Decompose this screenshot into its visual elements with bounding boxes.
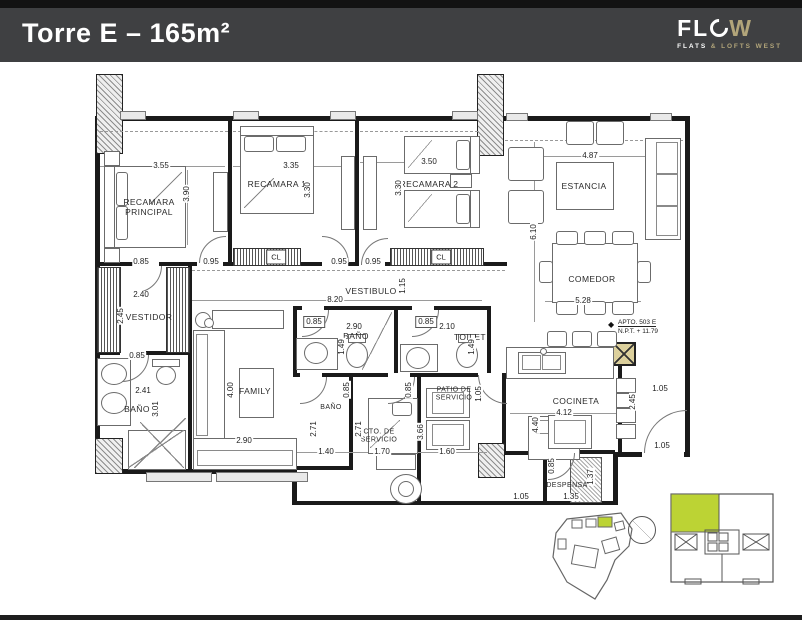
dim-label: 5.28 bbox=[574, 297, 592, 305]
nightstand bbox=[104, 248, 120, 263]
desk bbox=[212, 310, 284, 329]
dim-label: 1.60 bbox=[438, 448, 456, 456]
dim-label: 2.45 bbox=[629, 393, 637, 411]
wall bbox=[487, 306, 491, 377]
room-label-banio-servicio: BAÑO bbox=[320, 404, 341, 412]
room-label-patio-servicio: PATIO DE SERVICIO bbox=[436, 387, 473, 404]
dim-label: 0.85 bbox=[128, 352, 146, 360]
tower-core bbox=[705, 530, 739, 554]
flow-logo-tagline: FLATS & LOFTS WEST bbox=[677, 43, 782, 50]
tv-console bbox=[213, 172, 228, 232]
dim-label: 1.70 bbox=[373, 448, 391, 456]
closet-label: CL bbox=[266, 250, 286, 265]
dim-label: 0.95 bbox=[364, 258, 382, 266]
site-building bbox=[586, 519, 596, 527]
wall bbox=[293, 466, 351, 470]
dim-label: 1.05 bbox=[512, 493, 530, 501]
top-strip bbox=[0, 0, 802, 8]
room-label-banio-principal: BAÑO bbox=[124, 404, 150, 414]
dim-label: 1.05 bbox=[475, 385, 483, 403]
dim-label: 3.66 bbox=[417, 423, 425, 441]
tower-elevator bbox=[719, 543, 728, 551]
entry-door-swing bbox=[140, 422, 184, 468]
dim-label: 8.20 bbox=[326, 296, 344, 304]
room-label-recamara-principal: RECAMARA PRINCIPAL bbox=[123, 197, 174, 217]
bed-headboard bbox=[470, 136, 480, 174]
dim-label: 0.85 bbox=[303, 316, 325, 328]
sink-basin bbox=[522, 355, 541, 370]
tower-unit-highlight bbox=[671, 494, 719, 532]
tower-key-plan bbox=[663, 486, 783, 598]
column bbox=[477, 74, 504, 156]
room-label-family: FAMILY bbox=[239, 386, 271, 396]
dim-label: 3.35 bbox=[282, 162, 300, 170]
dim-label: 3.30 bbox=[304, 181, 312, 199]
dim-label: 3.90 bbox=[183, 185, 191, 203]
room-label-despensa: DESPENSA bbox=[546, 482, 587, 490]
site-building bbox=[558, 539, 566, 549]
npt-annotation: N.P.T. + 11.79 bbox=[618, 328, 658, 336]
dim-label: 2.41 bbox=[134, 387, 152, 395]
dim-label: 4.00 bbox=[227, 381, 235, 399]
dim-label: 0.85 bbox=[132, 258, 150, 266]
dim-line bbox=[187, 170, 188, 245]
pillow bbox=[456, 140, 470, 170]
window bbox=[120, 111, 146, 120]
site-building bbox=[614, 521, 625, 531]
apto-number: APTO. 503 E bbox=[618, 319, 656, 327]
pillow bbox=[392, 402, 412, 416]
tower-elevator bbox=[719, 533, 728, 541]
sink-basin bbox=[542, 355, 561, 370]
room-label-vestibulo: VESTIBULO bbox=[345, 286, 396, 296]
room-label-cto-servicio: CTO. DE SERVICIO bbox=[361, 429, 398, 446]
toilet bbox=[156, 366, 176, 385]
site-outline bbox=[553, 513, 632, 599]
tagline-amp: & bbox=[711, 43, 718, 50]
appliance bbox=[616, 424, 636, 439]
chair bbox=[612, 231, 634, 245]
pillow bbox=[244, 136, 274, 152]
header-bar: Torre E – 165m² FLW FLATS & LOFTS WEST bbox=[0, 8, 802, 62]
dim-label: 4.12 bbox=[555, 409, 573, 417]
tv-console bbox=[341, 156, 355, 230]
dim-label: 4.40 bbox=[532, 416, 540, 434]
dim-label: 2.71 bbox=[310, 420, 318, 438]
site-building bbox=[602, 537, 620, 554]
dim-label: 0.85 bbox=[415, 316, 437, 328]
wall bbox=[355, 116, 359, 266]
dashed-line bbox=[192, 270, 505, 271]
room-label-comedor: COMEDOR bbox=[568, 274, 615, 284]
pillow bbox=[276, 136, 306, 152]
site-building bbox=[572, 520, 582, 528]
flow-logo-word: FLW bbox=[677, 17, 782, 40]
column bbox=[96, 74, 123, 154]
dim-label: 3.50 bbox=[420, 158, 438, 166]
window bbox=[452, 111, 478, 120]
sofa-cushion bbox=[656, 174, 678, 206]
window bbox=[233, 111, 259, 120]
sofa-cushion bbox=[656, 206, 678, 236]
site-unit-highlight bbox=[598, 517, 612, 527]
wall bbox=[613, 452, 618, 505]
footer-strip bbox=[0, 615, 802, 620]
tower-elevator bbox=[708, 543, 717, 551]
sink-basin bbox=[304, 342, 328, 364]
dim-label: 1.40 bbox=[317, 448, 335, 456]
closet-label: CL bbox=[431, 250, 451, 265]
nightstand bbox=[104, 151, 120, 166]
dashed-line bbox=[100, 131, 228, 132]
faucet bbox=[540, 348, 547, 355]
dim-label: 3.01 bbox=[152, 400, 160, 418]
tower-elevator bbox=[708, 533, 717, 541]
dim-label: 2.10 bbox=[438, 323, 456, 331]
door-arc bbox=[300, 377, 327, 404]
cabinet bbox=[376, 454, 416, 470]
dim-label: 1.49 bbox=[338, 338, 346, 356]
compass-needle bbox=[632, 520, 652, 540]
tagline-flats: FLATS bbox=[677, 43, 707, 50]
window bbox=[146, 472, 212, 482]
appliance bbox=[616, 378, 636, 393]
dim-label: 4.87 bbox=[581, 152, 599, 160]
bed-headboard bbox=[104, 166, 115, 248]
bar-stool bbox=[547, 331, 567, 347]
room-label-cocineta: COCINETA bbox=[553, 396, 600, 406]
dim-label: 0.85 bbox=[548, 457, 556, 475]
sofa-back bbox=[196, 334, 208, 436]
room-label-recamara-1: RECAMARA 1 bbox=[248, 179, 307, 189]
tv-console bbox=[363, 156, 377, 230]
apto-annotation: APTO. 503 E bbox=[618, 319, 656, 327]
tagline-rest: LOFTS WEST bbox=[721, 43, 782, 50]
column bbox=[95, 438, 123, 474]
dim-label: 6.10 bbox=[530, 223, 538, 241]
laundry-door bbox=[432, 424, 464, 446]
window bbox=[506, 113, 528, 121]
dim-label: 2.45 bbox=[117, 307, 125, 325]
chair bbox=[539, 261, 553, 283]
closet bbox=[166, 267, 190, 353]
sofa-cushion bbox=[656, 142, 678, 174]
chair bbox=[637, 261, 651, 283]
dim-label: 0.85 bbox=[405, 381, 413, 399]
dim-label: 2.71 bbox=[355, 420, 363, 438]
room-label-estancia: ESTANCIA bbox=[561, 181, 606, 191]
dim-label: 1.05 bbox=[651, 385, 669, 393]
logo-fl: FL bbox=[677, 15, 709, 41]
dashed-line bbox=[360, 131, 478, 132]
room-label-banio-hall: BAÑO bbox=[343, 331, 369, 341]
room-label-recamara-2: RECAMARA 2 bbox=[400, 179, 459, 189]
window bbox=[650, 113, 672, 121]
dim-label: 0.95 bbox=[202, 258, 220, 266]
dim-label: 2.90 bbox=[235, 437, 253, 445]
dim-label: 2.90 bbox=[345, 323, 363, 331]
page-title: Torre E – 165m² bbox=[22, 18, 230, 49]
floorplan-sheet: { "header": { "title": "Torre E – 165m²"… bbox=[0, 0, 802, 620]
dim-label: 1.35 bbox=[562, 493, 580, 501]
bed-headboard bbox=[240, 126, 314, 136]
sink-basin bbox=[101, 392, 127, 414]
ottoman bbox=[566, 121, 594, 145]
washer-drum bbox=[398, 481, 414, 497]
dim-label: 0.85 bbox=[343, 381, 351, 399]
site-building bbox=[571, 545, 598, 568]
bar-stool bbox=[572, 331, 592, 347]
window bbox=[330, 111, 356, 120]
compass-icon bbox=[628, 516, 656, 544]
dim-label: 1.15 bbox=[399, 277, 407, 295]
armchair bbox=[508, 147, 544, 181]
dim-label: 3.30 bbox=[395, 179, 403, 197]
window bbox=[216, 472, 308, 482]
bed-fold bbox=[408, 194, 432, 222]
pillow bbox=[456, 194, 470, 224]
level-marker-icon: ◆ bbox=[608, 320, 614, 329]
sink-basin bbox=[406, 347, 430, 369]
desk-chair bbox=[204, 318, 214, 328]
logo-w: W bbox=[729, 15, 753, 41]
boiler-top bbox=[554, 420, 586, 444]
door-arc bbox=[135, 266, 162, 293]
bed-headboard bbox=[470, 190, 480, 228]
chair bbox=[584, 231, 606, 245]
dim-label: 1.05 bbox=[653, 442, 671, 450]
room-label-vestidor: VESTIDOR bbox=[126, 312, 173, 322]
dim-label: 1.49 bbox=[468, 338, 476, 356]
wall bbox=[228, 116, 232, 266]
dim-label: 0.95 bbox=[330, 258, 348, 266]
dim-label: 1.37 bbox=[587, 468, 595, 486]
ottoman bbox=[596, 121, 624, 145]
armchair bbox=[508, 190, 544, 224]
wall bbox=[394, 306, 398, 377]
sofa-back bbox=[197, 450, 293, 466]
bar-stool bbox=[597, 331, 617, 347]
flow-logo: FLW FLATS & LOFTS WEST bbox=[677, 17, 782, 50]
wall bbox=[685, 116, 690, 457]
dim-label: 2.40 bbox=[132, 291, 150, 299]
dim-label: 3.55 bbox=[152, 162, 170, 170]
chair bbox=[556, 231, 578, 245]
column bbox=[478, 443, 505, 478]
chair bbox=[612, 301, 634, 315]
